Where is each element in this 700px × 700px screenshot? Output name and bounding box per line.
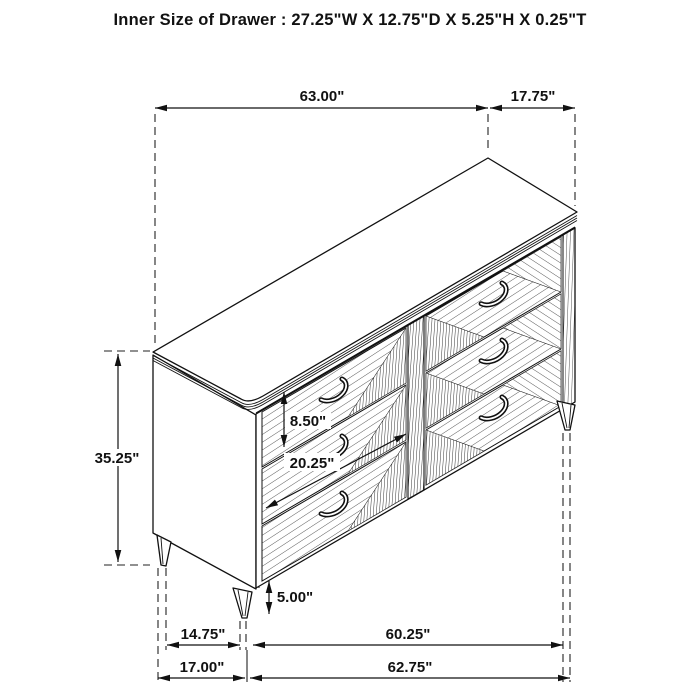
dim-base-depth: 17.00"	[158, 659, 245, 678]
diagram-canvas: Inner Size of Drawer : 27.25"W X 12.75"D…	[0, 0, 700, 700]
leg	[233, 588, 252, 618]
dim-base-inner-depth: 14.75"	[167, 626, 240, 645]
dresser-dimension-diagram: 63.00" 17.75" 35.25" 8.50" 20.25"	[0, 0, 700, 700]
dim-leg-height: 5.00"	[269, 581, 313, 614]
dim-base-inner-depth-label: 14.75"	[181, 626, 226, 643]
dim-base-width-label: 62.75"	[388, 659, 433, 676]
dim-base-depth-label: 17.00"	[180, 659, 225, 676]
dresser-drawing	[153, 158, 577, 618]
dim-base-inner-width-label: 60.25"	[386, 626, 431, 643]
dim-top-width-label: 63.00"	[300, 88, 345, 105]
leg	[557, 401, 575, 430]
dim-drawer-height-label: 8.50"	[290, 413, 326, 430]
right-stile	[563, 228, 575, 409]
dim-top-depth-label: 17.75"	[511, 88, 556, 105]
dim-base-width: 62.75"	[250, 659, 570, 678]
dim-top-depth: 17.75"	[490, 88, 575, 108]
dim-base-inner-width: 60.25"	[253, 626, 563, 645]
dim-overall-height-label: 35.25"	[95, 450, 140, 467]
dim-top-width: 63.00"	[155, 88, 488, 108]
dim-overall-height: 35.25"	[91, 354, 144, 562]
center-stile	[408, 316, 424, 499]
dim-leg-height-label: 5.00"	[277, 589, 313, 606]
dim-drawer-width-label: 20.25"	[290, 455, 335, 472]
